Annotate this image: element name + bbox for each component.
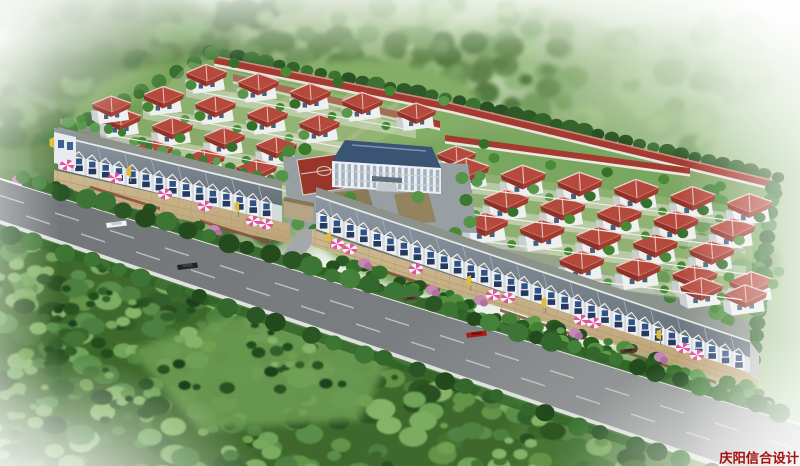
svg-text:庆阳信合设计: 庆阳信合设计 [718,450,799,466]
